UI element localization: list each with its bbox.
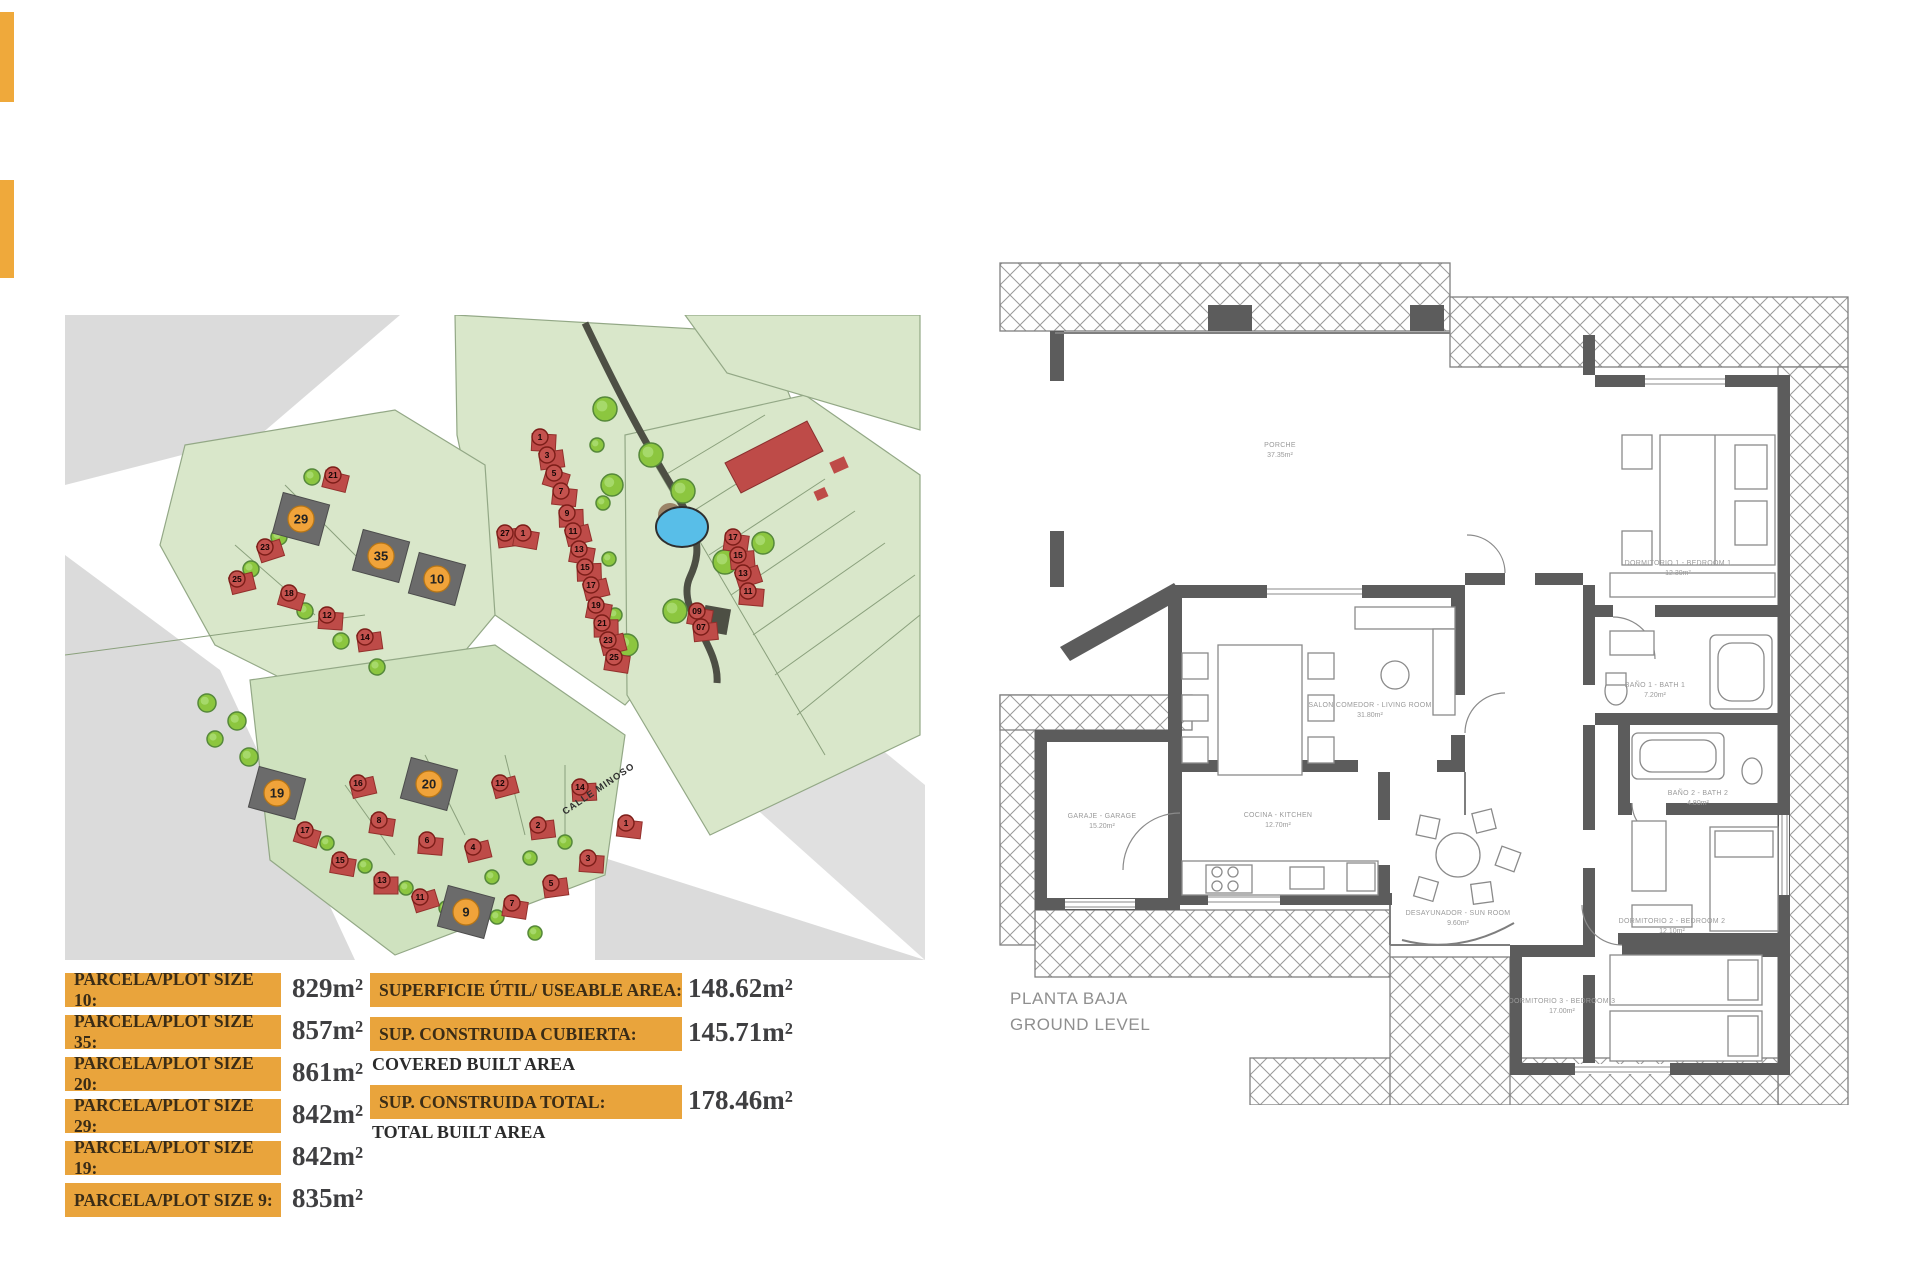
highlighted-plot-number: 9 [462,905,469,920]
highlighted-plot-number: 20 [422,777,436,792]
highlighted-plot-number: 19 [270,786,284,801]
plot-size-value: 857m² [292,1013,363,1047]
plot-number: 14 [575,782,585,792]
room-area: 15.20m² [1089,823,1115,830]
plot-number: 23 [260,542,270,552]
plot-size-row: PARCELA/PLOT SIZE 19: [65,1141,281,1175]
room-label: DESAYUNADOR - SUN ROOM [1406,910,1511,917]
room-label: DORMITORIO 1 - BEDROOM 1 [1625,560,1732,567]
plot-number: 5 [552,468,557,478]
area-row: SUPERFICIE ÚTIL/ USEABLE AREA: [370,973,682,1007]
plot-number: 09 [692,606,702,616]
room-label: DORMITORIO 2 - BEDROOM 2 [1619,918,1726,925]
accent-bar-mid [0,180,14,278]
swimming-pool [656,507,708,547]
area-row: SUP. CONSTRUIDA TOTAL: [370,1085,682,1119]
area-value: 148.62m² [688,971,793,1005]
plot-size-value: 842m² [292,1097,363,1131]
plot-number: 21 [328,470,338,480]
plot-number: 17 [586,580,596,590]
plot-number: 12 [495,778,505,788]
accent-bar-top [0,12,14,102]
plot-number: 15 [733,550,743,560]
highlighted-plot-number: 10 [430,572,444,587]
dining-table [1218,645,1302,775]
plot-size-row: PARCELA/PLOT SIZE 10: [65,973,281,1007]
area-row-sub: COVERED BUILT AREA [372,1054,575,1075]
area-row: SUP. CONSTRUIDA CUBIERTA: [370,1017,682,1051]
ground-floor-plan: PORCHE37.35m²SALON COMEDOR - LIVING ROOM… [810,255,1870,1105]
room-area: 17.00m² [1549,1008,1575,1015]
room-label: SALON COMEDOR - LIVING ROOM [1308,702,1431,709]
plot-number: 23 [603,635,613,645]
plot-number: 13 [574,544,584,554]
area-value: 145.71m² [688,1015,793,1049]
plot-number: 12 [322,610,332,620]
room-label: DORMITORIO 3 - BEDROOM 3 [1509,998,1616,1005]
highlighted-plot-number: 35 [374,549,388,564]
plot-number: 07 [696,622,706,632]
plot-size-value: 829m² [292,971,363,1005]
breakfast-table [1436,833,1480,877]
plot-number: 1 [538,432,543,442]
plot-number: 5 [549,878,554,888]
plot-number: 13 [377,875,387,885]
plot-number: 17 [728,532,738,542]
plot-number: 7 [510,898,515,908]
sofa [1355,607,1455,629]
plot-number: 19 [591,600,601,610]
plot-number: 25 [232,574,242,584]
site-plan-map: 1357911131517192123251715131109072712123… [65,315,925,963]
room-label: GARAJE - GARAGE [1068,813,1137,820]
plot-number: 7 [559,486,564,496]
plot-number: 11 [416,892,425,902]
plot-number: 6 [425,835,430,845]
plot-number: 3 [545,450,550,460]
plot-number: 2 [536,820,541,830]
plot-number: 18 [284,588,294,598]
plot-number: 21 [597,618,607,628]
plot-number: 1 [624,818,629,828]
room-area: 12.70m² [1265,822,1291,829]
plot-number: 17 [300,825,310,835]
plot-size-row: PARCELA/PLOT SIZE 9: [65,1183,281,1217]
plot-number: 16 [353,778,363,788]
plot-number: 1 [521,528,526,538]
plan-title: PLANTA BAJA GROUND LEVEL [1010,986,1150,1037]
plot-number: 15 [335,855,345,865]
plot-number: 11 [569,526,578,536]
plot-size-value: 842m² [292,1139,363,1173]
plan-title-en: GROUND LEVEL [1010,1012,1150,1038]
room-area: 12.10m² [1659,928,1685,935]
plot-size-value: 835m² [292,1181,363,1215]
room-area: 4.80m² [1687,800,1709,807]
room-area: 9.60m² [1447,920,1469,927]
highlighted-plot-number: 29 [294,512,308,527]
plot-size-value: 861m² [292,1055,363,1089]
room-area: 31.80m² [1357,712,1383,719]
plot-number: 8 [377,815,382,825]
room-label: BAÑO 1 - BATH 1 [1625,680,1685,689]
plot-number: 13 [738,568,748,578]
room-area: 7.20m² [1644,692,1666,699]
room-area: 12.30m² [1665,570,1691,577]
plot-size-row: PARCELA/PLOT SIZE 29: [65,1099,281,1133]
plan-title-es: PLANTA BAJA [1010,986,1150,1012]
plot-number: 11 [744,586,753,596]
plot-number: 9 [565,508,570,518]
plot-number: 4 [471,842,476,852]
plot-size-row: PARCELA/PLOT SIZE 35: [65,1015,281,1049]
plot-number: 14 [360,632,370,642]
room-area: 37.35m² [1267,452,1293,459]
plot-number: 25 [609,652,619,662]
room-label: PORCHE [1264,442,1296,449]
plot-number: 27 [500,528,510,538]
area-value: 178.46m² [688,1083,793,1117]
area-row-sub: TOTAL BUILT AREA [372,1122,545,1143]
room-label: COCINA - KITCHEN [1244,812,1313,819]
plot-number: 15 [580,562,590,572]
plot-number: 3 [586,853,591,863]
room-label: BAÑO 2 - BATH 2 [1668,788,1728,797]
plot-size-row: PARCELA/PLOT SIZE 20: [65,1057,281,1091]
brochure-page: { "accent": {"orange":"#E9A43C","bar_ora… [0,0,1920,1280]
